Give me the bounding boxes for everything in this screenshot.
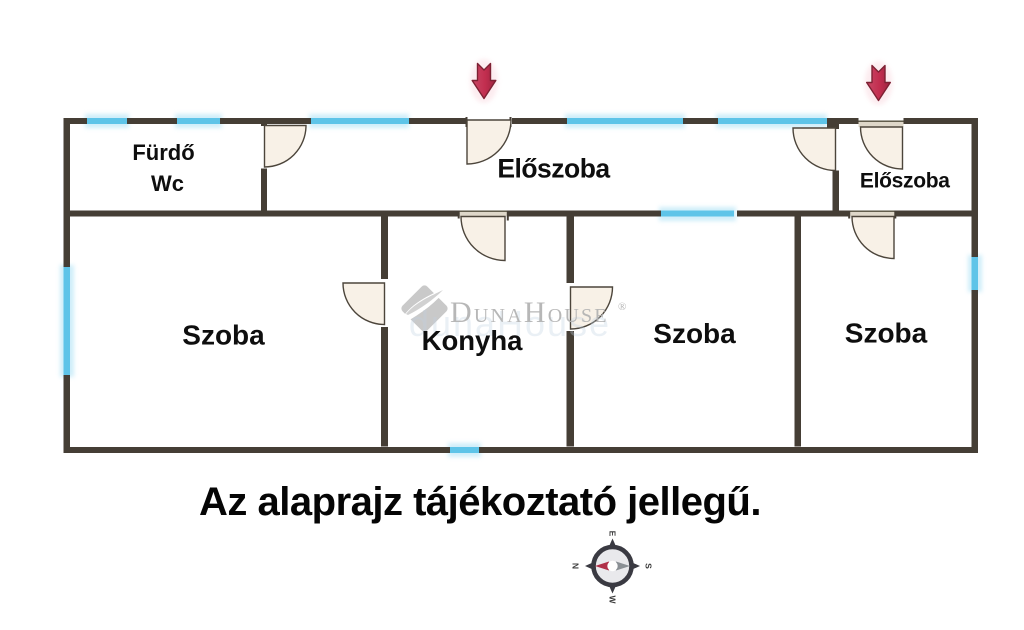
svg-text:N: N (571, 563, 581, 569)
svg-text:E: E (608, 531, 618, 537)
svg-text:Fürdő: Fürdő (132, 140, 194, 165)
svg-text:Előszoba: Előszoba (860, 170, 950, 193)
svg-text:Wc: Wc (151, 171, 184, 196)
svg-text:Előszoba: Előszoba (497, 154, 610, 184)
svg-text:Szoba: Szoba (653, 318, 736, 349)
svg-text:Konyha: Konyha (422, 325, 524, 356)
svg-text:Szoba: Szoba (845, 318, 928, 349)
svg-text:W: W (608, 595, 618, 604)
svg-text:®: ® (618, 301, 626, 313)
svg-text:Az alaprajz tájékoztató jelleg: Az alaprajz tájékoztató jellegű. (199, 480, 761, 524)
svg-text:Szoba: Szoba (182, 320, 265, 351)
svg-text:S: S (644, 563, 654, 569)
